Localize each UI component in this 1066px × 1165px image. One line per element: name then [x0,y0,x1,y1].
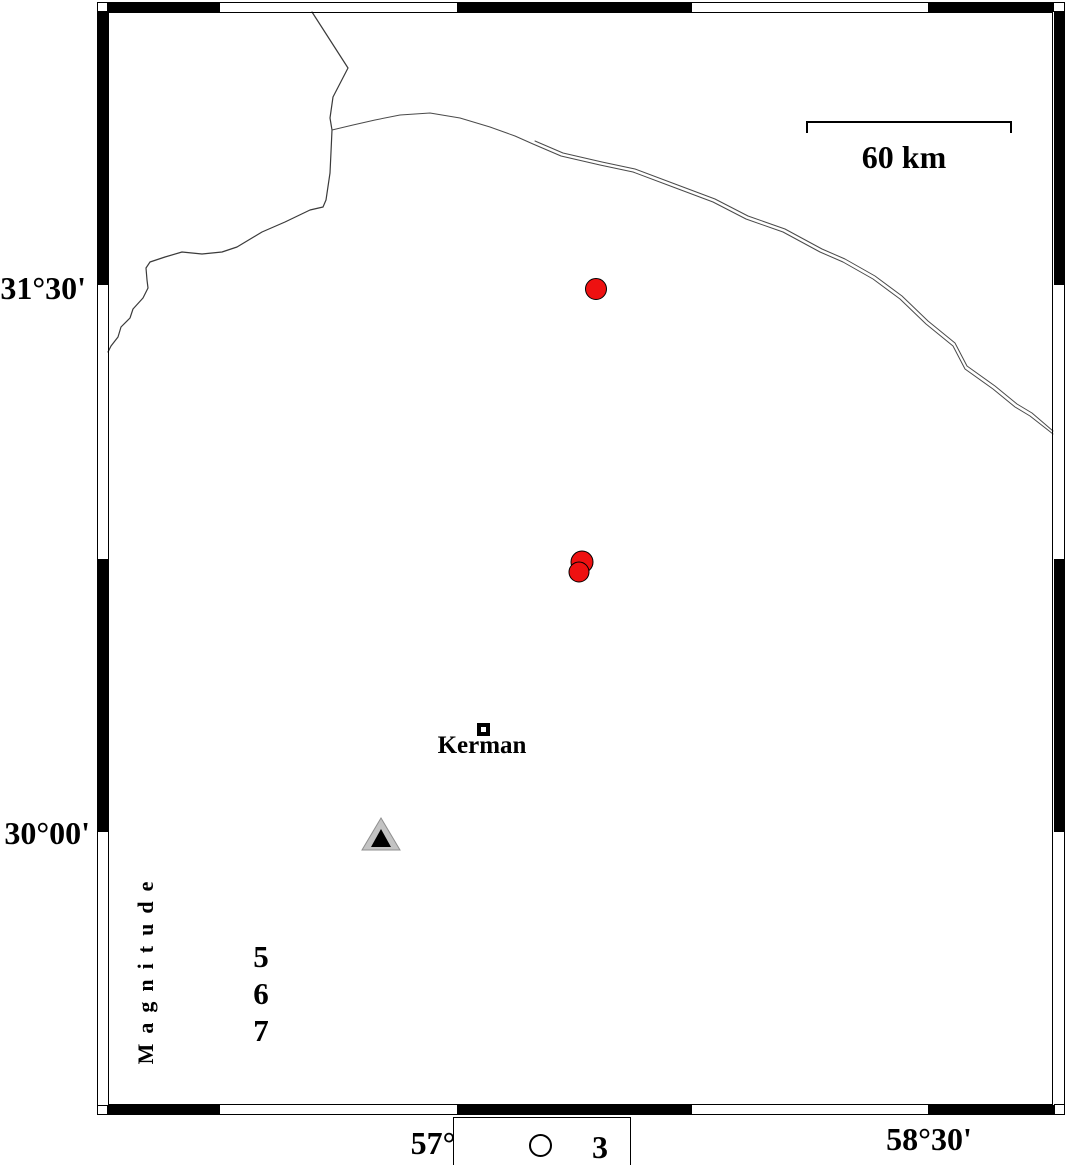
frame-tick-segment [928,1105,1057,1115]
scale-bar-label: 60 km [824,141,984,173]
magnitude-legend-title: Magnitude [135,858,161,1078]
latitude-label-lower: 30°00' [0,817,90,849]
seismicity-map: 31°30' 30°00' 57° 58°30' 60 km Kerman Ma… [0,0,1066,1165]
frame-tick-segment [457,2,692,12]
frame-tick-segment [928,2,1053,12]
frame-tick-segment [108,1105,220,1115]
magnitude-legend-value-7: 7 [245,1015,277,1046]
frame-tick-segment [457,1105,692,1115]
frame-tick-segment [108,2,220,12]
magnitude-legend-value-6: 6 [245,978,277,1009]
frame-corner-top-right [1053,2,1065,12]
frame-tick-segment [1054,10,1065,285]
symbol-legend-value: 3 [584,1131,616,1163]
longitude-label-right: 58°30' [859,1123,999,1155]
frame-corner-top-left [97,2,108,12]
frame-tick-segment [97,12,108,285]
frame-corner-bottom-left [97,1105,108,1115]
latitude-label-upper: 31°30' [0,272,86,304]
symbol-legend-circle-icon [529,1134,552,1157]
frame-tick-segment [1054,559,1065,832]
magnitude-legend-value-5: 5 [245,941,277,972]
city-label: Kerman [402,733,562,758]
frame-tick-segment [97,559,108,832]
frame-corner-bottom-right [1054,1104,1065,1115]
